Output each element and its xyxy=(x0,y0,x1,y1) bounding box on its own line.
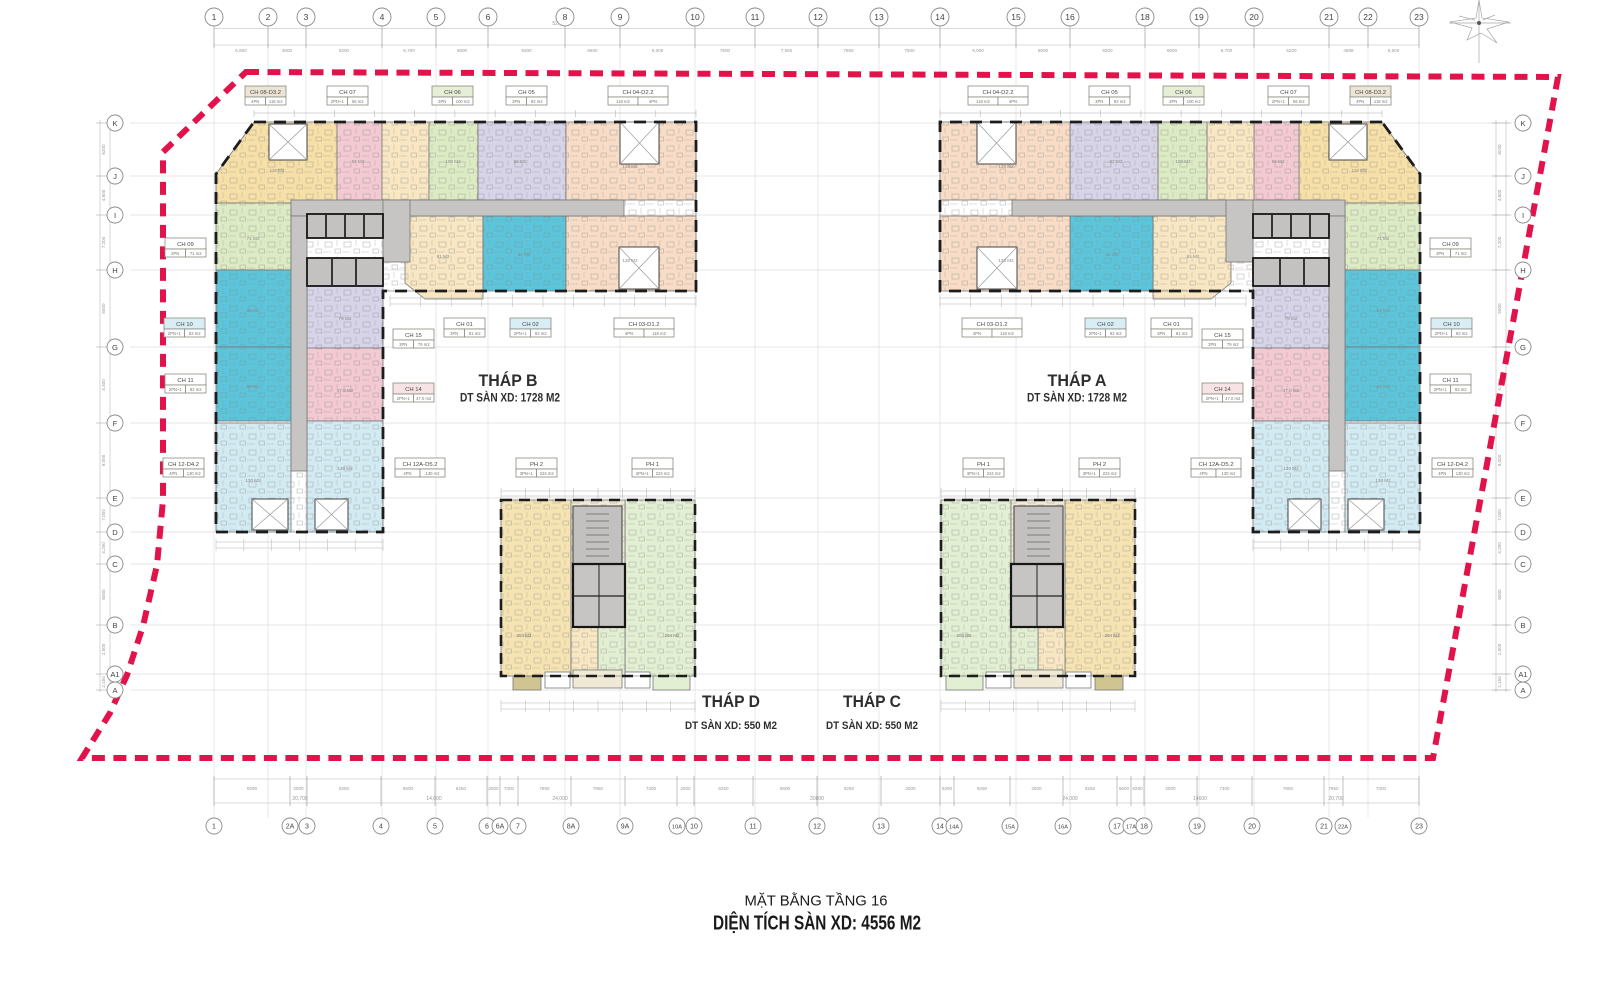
svg-text:PH 1: PH 1 xyxy=(646,462,659,468)
svg-text:G: G xyxy=(1520,343,1526,352)
svg-text:17A: 17A xyxy=(1126,825,1136,831)
svg-text:CH 07: CH 07 xyxy=(1280,90,1297,96)
svg-text:6600: 6600 xyxy=(457,48,468,53)
svg-text:7300: 7300 xyxy=(504,786,515,791)
svg-text:4PN: 4PN xyxy=(1438,471,1446,476)
svg-text:PH 2: PH 2 xyxy=(1093,462,1106,468)
svg-text:6200: 6200 xyxy=(101,144,106,155)
svg-text:9,000: 9,000 xyxy=(652,48,664,53)
svg-text:8: 8 xyxy=(563,12,568,22)
svg-text:20,700: 20,700 xyxy=(1328,796,1344,802)
svg-text:7300: 7300 xyxy=(646,786,657,791)
svg-text:82 M2: 82 M2 xyxy=(1377,384,1390,389)
svg-text:11: 11 xyxy=(751,12,760,22)
svg-text:7850: 7850 xyxy=(1283,786,1294,791)
svg-text:CH 04-D2.2: CH 04-D2.2 xyxy=(982,90,1013,96)
svg-text:7850: 7850 xyxy=(593,786,604,791)
svg-text:13: 13 xyxy=(874,12,884,22)
svg-text:CH 15: CH 15 xyxy=(405,333,422,339)
svg-text:82 M2: 82 M2 xyxy=(247,384,260,389)
svg-text:22A: 22A xyxy=(1338,825,1348,831)
svg-text:7,650: 7,650 xyxy=(781,48,793,53)
svg-text:CH 05: CH 05 xyxy=(1101,90,1118,96)
svg-text:3PN: 3PN xyxy=(1436,251,1444,256)
svg-text:138 M2: 138 M2 xyxy=(622,164,638,169)
svg-text:CH 03-D1.2: CH 03-D1.2 xyxy=(628,322,659,328)
svg-text:6600: 6600 xyxy=(780,786,791,791)
svg-text:3: 3 xyxy=(304,12,309,22)
svg-text:CH 06: CH 06 xyxy=(444,90,461,96)
svg-text:47.0 M2: 47.0 M2 xyxy=(337,388,354,393)
svg-text:CH 12A-D5.2: CH 12A-D5.2 xyxy=(1198,462,1233,468)
svg-text:9: 9 xyxy=(618,12,623,22)
svg-text:130 M2: 130 M2 xyxy=(245,478,261,483)
svg-text:B: B xyxy=(112,621,117,630)
svg-text:9290: 9290 xyxy=(247,786,258,791)
svg-text:2,150: 2,150 xyxy=(1497,676,1502,688)
svg-text:79 m2: 79 m2 xyxy=(1227,342,1239,347)
svg-text:I: I xyxy=(1522,211,1524,220)
svg-text:CH 04-D2.2: CH 04-D2.2 xyxy=(622,90,653,96)
svg-text:204 M2: 204 M2 xyxy=(1104,633,1120,638)
svg-text:19: 19 xyxy=(1194,12,1204,22)
svg-text:6250: 6250 xyxy=(844,786,855,791)
svg-text:4PN: 4PN xyxy=(625,331,633,336)
svg-text:5000: 5000 xyxy=(101,303,106,314)
svg-text:118 M2: 118 M2 xyxy=(270,168,285,173)
svg-text:23: 23 xyxy=(1414,12,1424,22)
svg-text:6: 6 xyxy=(485,824,489,831)
svg-text:224 m2: 224 m2 xyxy=(1103,471,1118,476)
svg-text:D: D xyxy=(1520,528,1526,537)
svg-text:6600: 6600 xyxy=(1119,786,1130,791)
svg-text:6600: 6600 xyxy=(403,786,414,791)
svg-text:CH 07: CH 07 xyxy=(339,90,356,96)
svg-text:4PN: 4PN xyxy=(403,471,411,476)
svg-text:5200: 5200 xyxy=(339,48,350,53)
svg-text:20: 20 xyxy=(1249,12,1259,22)
svg-text:CH 11: CH 11 xyxy=(177,378,193,384)
svg-text:CH 09: CH 09 xyxy=(1442,242,1459,248)
svg-text:PH 2: PH 2 xyxy=(530,462,543,468)
svg-text:82 M2: 82 M2 xyxy=(514,159,527,164)
svg-text:6600: 6600 xyxy=(1167,48,1178,53)
svg-text:3: 3 xyxy=(305,824,309,831)
svg-text:6000: 6000 xyxy=(101,589,106,600)
svg-text:6000: 6000 xyxy=(1497,589,1502,600)
svg-text:19: 19 xyxy=(1193,824,1201,831)
svg-text:CH 01: CH 01 xyxy=(1163,322,1180,328)
svg-text:14A: 14A xyxy=(949,825,959,831)
svg-text:4,600: 4,600 xyxy=(1497,189,1502,201)
svg-text:14,600: 14,600 xyxy=(426,796,442,802)
svg-text:56 M2: 56 M2 xyxy=(352,159,365,164)
svg-text:21: 21 xyxy=(1324,12,1334,22)
svg-text:9A: 9A xyxy=(621,824,630,831)
svg-text:2PN+1: 2PN+1 xyxy=(169,387,183,392)
svg-text:DT SÀN XD: 1728 M2: DT SÀN XD: 1728 M2 xyxy=(460,392,560,405)
svg-text:J: J xyxy=(113,172,117,181)
svg-text:CH 14: CH 14 xyxy=(1214,387,1231,393)
svg-text:2PN+1: 2PN+1 xyxy=(1435,331,1449,336)
svg-text:THÁP D: THÁP D xyxy=(702,692,760,711)
svg-text:PH 1: PH 1 xyxy=(977,462,990,468)
svg-text:G: G xyxy=(112,343,118,352)
svg-text:2000: 2000 xyxy=(680,786,691,791)
svg-text:47.0 m2: 47.0 m2 xyxy=(416,396,432,401)
svg-text:C: C xyxy=(1520,560,1526,569)
svg-text:6250: 6250 xyxy=(718,786,729,791)
svg-text:130 m2: 130 m2 xyxy=(1222,471,1237,476)
svg-text:3PN+1: 3PN+1 xyxy=(967,471,981,476)
svg-text:81 M2: 81 M2 xyxy=(1187,254,1200,259)
svg-text:4PN: 4PN xyxy=(649,99,657,104)
svg-text:2PN+1: 2PN+1 xyxy=(331,99,345,104)
svg-text:1: 1 xyxy=(212,12,217,22)
svg-text:2000: 2000 xyxy=(1165,786,1176,791)
svg-text:138 M2: 138 M2 xyxy=(998,258,1014,263)
svg-text:2000: 2000 xyxy=(1031,786,1042,791)
svg-text:9290: 9290 xyxy=(977,786,988,791)
svg-text:4PN: 4PN xyxy=(973,331,981,336)
svg-text:THÁP C: THÁP C xyxy=(843,692,901,711)
svg-text:CH 08-D3.2: CH 08-D3.2 xyxy=(250,90,281,96)
svg-text:CH 14: CH 14 xyxy=(405,387,422,393)
svg-text:71 m2: 71 m2 xyxy=(190,251,202,256)
svg-text:2PN+1: 2PN+1 xyxy=(168,331,182,336)
svg-text:23: 23 xyxy=(1415,824,1423,831)
svg-text:8A: 8A xyxy=(567,824,576,831)
svg-text:71 M2: 71 M2 xyxy=(247,236,260,241)
svg-text:CH 10: CH 10 xyxy=(1443,322,1460,328)
svg-text:6250: 6250 xyxy=(456,786,467,791)
svg-text:9290: 9290 xyxy=(942,786,953,791)
svg-text:204 M2: 204 M2 xyxy=(664,633,680,638)
svg-text:4: 4 xyxy=(379,824,383,831)
svg-text:J: J xyxy=(1521,172,1525,181)
svg-text:4888: 4888 xyxy=(1343,48,1354,53)
svg-text:118 m2: 118 m2 xyxy=(616,99,630,104)
svg-text:F: F xyxy=(113,419,118,428)
svg-text:82 M2: 82 M2 xyxy=(1377,308,1390,313)
svg-text:3PN: 3PN xyxy=(1169,99,1177,104)
svg-text:6: 6 xyxy=(486,12,491,22)
svg-text:4PN: 4PN xyxy=(1356,99,1364,104)
svg-text:21: 21 xyxy=(1320,824,1328,831)
svg-text:22: 22 xyxy=(1363,12,1373,22)
svg-text:204 M2: 204 M2 xyxy=(956,633,972,638)
svg-text:DT SÀN XD: 550 M2: DT SÀN XD: 550 M2 xyxy=(826,719,918,732)
svg-text:14: 14 xyxy=(935,12,945,22)
svg-text:2,500: 2,500 xyxy=(101,643,106,655)
svg-text:C: C xyxy=(112,560,118,569)
svg-text:6600: 6600 xyxy=(1038,48,1049,53)
svg-text:E: E xyxy=(1520,494,1525,503)
svg-text:16A: 16A xyxy=(1058,825,1068,831)
svg-text:D: D xyxy=(112,528,118,537)
svg-text:56 M2: 56 M2 xyxy=(1272,159,1285,164)
svg-text:24,000: 24,000 xyxy=(1062,796,1078,802)
svg-text:18: 18 xyxy=(1140,12,1150,22)
svg-text:CH 12-D4.2: CH 12-D4.2 xyxy=(1437,462,1468,468)
svg-text:6,500: 6,500 xyxy=(235,48,247,53)
svg-text:82 m2: 82 m2 xyxy=(1455,387,1467,392)
svg-text:5: 5 xyxy=(434,12,439,22)
svg-text:THÁP A: THÁP A xyxy=(1048,371,1107,390)
svg-text:56 m2: 56 m2 xyxy=(352,99,364,104)
svg-text:11: 11 xyxy=(749,824,756,831)
svg-text:DIỆN TÍCH SÀN XD: 4556 M2: DIỆN TÍCH SÀN XD: 4556 M2 xyxy=(713,911,921,935)
svg-text:71 M2: 71 M2 xyxy=(1377,236,1390,241)
svg-text:56 m2: 56 m2 xyxy=(1293,99,1305,104)
svg-text:130 M2: 130 M2 xyxy=(1375,478,1391,483)
svg-text:118 M2: 118 M2 xyxy=(1352,168,1367,173)
svg-text:6250: 6250 xyxy=(339,786,350,791)
svg-text:2PN+1: 2PN+1 xyxy=(1089,331,1103,336)
svg-text:81 m2: 81 m2 xyxy=(469,331,481,336)
svg-text:9300: 9300 xyxy=(1102,48,1113,53)
svg-text:THÁP B: THÁP B xyxy=(479,371,538,390)
svg-text:CH 02: CH 02 xyxy=(1097,322,1114,328)
svg-text:12: 12 xyxy=(813,12,823,22)
svg-text:F: F xyxy=(1521,419,1526,428)
svg-text:4PN: 4PN xyxy=(251,99,259,104)
svg-text:CH 09: CH 09 xyxy=(177,242,194,248)
svg-text:H: H xyxy=(112,266,117,275)
svg-text:CH 12A-D5.2: CH 12A-D5.2 xyxy=(402,462,437,468)
svg-text:82 m2: 82 m2 xyxy=(190,387,202,392)
svg-text:224 m2: 224 m2 xyxy=(987,471,1002,476)
svg-text:2,500: 2,500 xyxy=(1497,643,1502,655)
svg-text:3PN: 3PN xyxy=(1157,331,1165,336)
svg-text:CH 15: CH 15 xyxy=(1214,333,1231,339)
svg-text:15A: 15A xyxy=(1005,825,1015,831)
svg-text:82 M2: 82 M2 xyxy=(1106,252,1119,257)
svg-text:118 m2: 118 m2 xyxy=(652,331,666,336)
svg-text:81 m2: 81 m2 xyxy=(1176,331,1188,336)
svg-text:6,700: 6,700 xyxy=(403,48,415,53)
svg-text:K: K xyxy=(112,119,117,128)
svg-text:3PN: 3PN xyxy=(1208,342,1216,347)
svg-text:DT SÀN XD: 550 M2: DT SÀN XD: 550 M2 xyxy=(685,719,777,732)
svg-text:9,000: 9,000 xyxy=(101,454,106,466)
svg-text:A1: A1 xyxy=(110,670,119,679)
svg-text:2PN+1: 2PN+1 xyxy=(397,396,411,401)
svg-text:I: I xyxy=(114,211,116,220)
svg-text:138 M2: 138 M2 xyxy=(622,258,638,263)
svg-text:7850: 7850 xyxy=(539,786,550,791)
svg-text:82 m2: 82 m2 xyxy=(535,331,547,336)
svg-text:4PN: 4PN xyxy=(1009,99,1017,104)
svg-text:6A: 6A xyxy=(496,824,505,831)
svg-text:138 M2: 138 M2 xyxy=(998,164,1014,169)
svg-text:17: 17 xyxy=(1113,824,1121,831)
svg-text:10A: 10A xyxy=(672,825,682,831)
svg-text:3PN: 3PN xyxy=(438,99,446,104)
svg-text:6250: 6250 xyxy=(1085,786,1096,791)
svg-text:6,700: 6,700 xyxy=(1221,48,1233,53)
svg-text:9,000: 9,000 xyxy=(972,48,984,53)
svg-text:118 m2: 118 m2 xyxy=(1000,331,1014,336)
svg-text:2000: 2000 xyxy=(293,786,304,791)
svg-text:118 m2: 118 m2 xyxy=(269,99,283,104)
svg-text:CH 10: CH 10 xyxy=(176,322,193,328)
svg-text:6250: 6250 xyxy=(1132,786,1143,791)
svg-text:130 m2: 130 m2 xyxy=(1456,471,1471,476)
svg-text:100 M2: 100 M2 xyxy=(1175,159,1191,164)
svg-text:79 m2: 79 m2 xyxy=(418,342,430,347)
svg-text:4,400: 4,400 xyxy=(101,379,106,391)
svg-text:14600: 14600 xyxy=(1193,796,1207,802)
svg-text:10: 10 xyxy=(690,824,698,831)
svg-text:2PN+1: 2PN+1 xyxy=(514,331,528,336)
svg-text:82 m2: 82 m2 xyxy=(1456,331,1468,336)
svg-text:4,250: 4,250 xyxy=(1497,542,1502,554)
svg-text:3PN+1: 3PN+1 xyxy=(1083,471,1097,476)
svg-text:4800: 4800 xyxy=(282,48,293,53)
svg-text:6200: 6200 xyxy=(1497,144,1502,155)
svg-text:71 m2: 71 m2 xyxy=(1455,251,1467,256)
svg-text:82 m2: 82 m2 xyxy=(189,331,201,336)
svg-text:3PN+1: 3PN+1 xyxy=(636,471,650,476)
svg-text:CH 11: CH 11 xyxy=(1442,378,1458,384)
svg-text:2,150: 2,150 xyxy=(101,676,106,688)
svg-text:K: K xyxy=(1520,119,1525,128)
svg-text:24,000: 24,000 xyxy=(552,796,568,802)
svg-text:7650: 7650 xyxy=(843,48,854,53)
svg-text:7,200: 7,200 xyxy=(101,236,106,248)
svg-text:3PN: 3PN xyxy=(1095,99,1103,104)
svg-text:130 m2: 130 m2 xyxy=(187,471,202,476)
svg-text:92 m2: 92 m2 xyxy=(531,99,543,104)
svg-text:20: 20 xyxy=(1248,824,1256,831)
svg-text:1: 1 xyxy=(212,824,216,831)
svg-text:82 M2: 82 M2 xyxy=(247,308,260,313)
svg-text:118 m2: 118 m2 xyxy=(1374,99,1388,104)
svg-text:CH 03-D1.2: CH 03-D1.2 xyxy=(976,322,1007,328)
svg-text:H: H xyxy=(1520,266,1525,275)
svg-text:2: 2 xyxy=(266,12,271,22)
svg-text:7300: 7300 xyxy=(1376,786,1387,791)
svg-text:81 M2: 81 M2 xyxy=(437,254,450,259)
svg-text:B: B xyxy=(1520,621,1525,630)
svg-text:7,200: 7,200 xyxy=(1497,236,1502,248)
svg-text:130 M2: 130 M2 xyxy=(337,466,353,471)
svg-text:130 M2: 130 M2 xyxy=(1283,466,1299,471)
svg-text:92 m2: 92 m2 xyxy=(1114,99,1126,104)
svg-text:CH 02: CH 02 xyxy=(522,322,539,328)
svg-text:3PN: 3PN xyxy=(450,331,458,336)
svg-text:14: 14 xyxy=(936,824,944,831)
svg-text:4,250: 4,250 xyxy=(101,542,106,554)
svg-text:20,700: 20,700 xyxy=(292,796,308,802)
svg-text:9,000: 9,000 xyxy=(1497,454,1502,466)
svg-text:204 M2: 204 M2 xyxy=(516,633,532,638)
svg-text:CH 01: CH 01 xyxy=(456,322,473,328)
svg-text:4PN: 4PN xyxy=(169,471,177,476)
svg-text:30800: 30800 xyxy=(810,796,824,802)
svg-text:2000: 2000 xyxy=(905,786,916,791)
svg-text:6,500: 6,500 xyxy=(1388,48,1400,53)
svg-text:47.0 M2: 47.0 M2 xyxy=(1283,388,1300,393)
svg-text:224 m2: 224 m2 xyxy=(540,471,555,476)
svg-text:3PN+1: 3PN+1 xyxy=(520,471,534,476)
svg-text:82 m2: 82 m2 xyxy=(1110,331,1122,336)
svg-text:7300: 7300 xyxy=(1219,786,1230,791)
svg-text:2PN+1: 2PN+1 xyxy=(1206,396,1220,401)
svg-text:13: 13 xyxy=(877,824,885,831)
svg-text:CH 06: CH 06 xyxy=(1175,90,1192,96)
svg-text:CH 05: CH 05 xyxy=(518,90,535,96)
svg-text:10: 10 xyxy=(690,12,700,22)
svg-text:130 m2: 130 m2 xyxy=(426,471,441,476)
svg-text:100 M2: 100 M2 xyxy=(445,159,461,164)
svg-text:82 M2: 82 M2 xyxy=(1110,159,1123,164)
svg-text:100 m2: 100 m2 xyxy=(1187,99,1202,104)
svg-text:7: 7 xyxy=(516,824,520,831)
svg-text:A1: A1 xyxy=(1518,670,1527,679)
svg-text:16: 16 xyxy=(1065,12,1075,22)
svg-text:CH 08-D3.2: CH 08-D3.2 xyxy=(1355,90,1386,96)
svg-text:4,600: 4,600 xyxy=(101,189,106,201)
svg-text:7,000: 7,000 xyxy=(101,509,106,521)
svg-text:7850: 7850 xyxy=(1328,786,1339,791)
svg-text:12: 12 xyxy=(813,824,821,831)
svg-text:CH 12-D4.2: CH 12-D4.2 xyxy=(168,462,199,468)
svg-text:9300: 9300 xyxy=(521,48,532,53)
svg-text:118 m2: 118 m2 xyxy=(976,99,990,104)
svg-text:47.0 m2: 47.0 m2 xyxy=(1225,396,1241,401)
svg-text:2A: 2A xyxy=(286,824,295,831)
svg-text:79 M2: 79 M2 xyxy=(339,316,352,321)
svg-text:DT SÀN XD: 1728 M2: DT SÀN XD: 1728 M2 xyxy=(1027,392,1127,405)
svg-text:2PN+1: 2PN+1 xyxy=(1272,99,1286,104)
svg-text:3PN: 3PN xyxy=(512,99,520,104)
svg-text:5000: 5000 xyxy=(1497,303,1502,314)
svg-text:82 M2: 82 M2 xyxy=(518,252,531,257)
svg-text:E: E xyxy=(112,494,117,503)
svg-text:3PN: 3PN xyxy=(399,342,407,347)
svg-text:7500: 7500 xyxy=(720,48,731,53)
svg-text:15: 15 xyxy=(1011,12,1021,22)
svg-text:100 m2: 100 m2 xyxy=(456,99,471,104)
svg-text:4: 4 xyxy=(380,12,385,22)
svg-text:224 m2: 224 m2 xyxy=(656,471,671,476)
svg-text:3PN: 3PN xyxy=(171,251,179,256)
svg-text:79 M2: 79 M2 xyxy=(1285,316,1298,321)
svg-text:7500: 7500 xyxy=(904,48,915,53)
svg-text:4PN: 4PN xyxy=(1199,471,1207,476)
svg-text:2PN+1: 2PN+1 xyxy=(1434,387,1448,392)
svg-text:7,000: 7,000 xyxy=(1497,509,1502,521)
svg-text:6600: 6600 xyxy=(587,48,598,53)
svg-text:18: 18 xyxy=(1140,824,1148,831)
svg-text:MẶT BẰNG TẦNG 16: MẶT BẰNG TẦNG 16 xyxy=(745,892,888,910)
svg-text:5200: 5200 xyxy=(1286,48,1297,53)
svg-text:5: 5 xyxy=(433,824,437,831)
svg-text:2000: 2000 xyxy=(488,786,499,791)
